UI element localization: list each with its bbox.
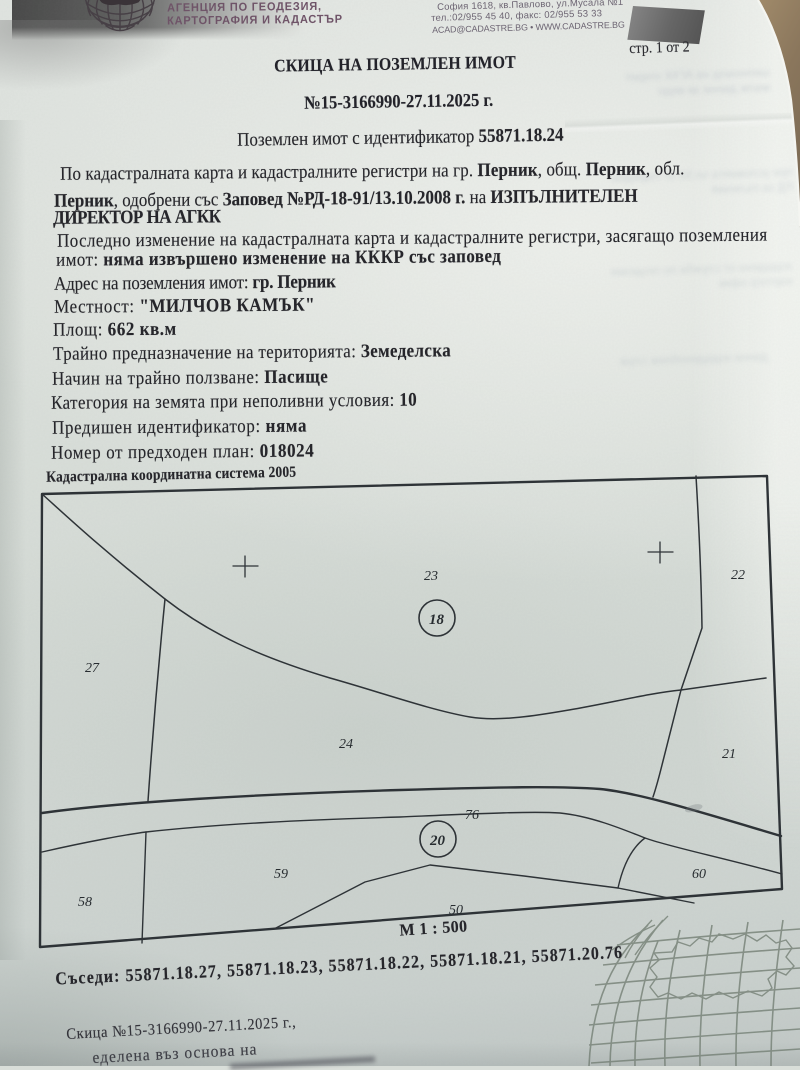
svg-text:59: 59 [274,867,288,882]
svg-text:76: 76 [465,808,479,823]
svg-text:18: 18 [429,612,445,628]
svg-text:24: 24 [339,737,353,752]
svg-text:20: 20 [429,833,446,849]
svg-text:58: 58 [78,895,92,910]
svg-text:21: 21 [722,747,736,762]
svg-text:22: 22 [731,568,745,583]
svg-text:27: 27 [85,661,100,676]
svg-text:60: 60 [692,867,706,882]
svg-text:23: 23 [424,569,438,584]
